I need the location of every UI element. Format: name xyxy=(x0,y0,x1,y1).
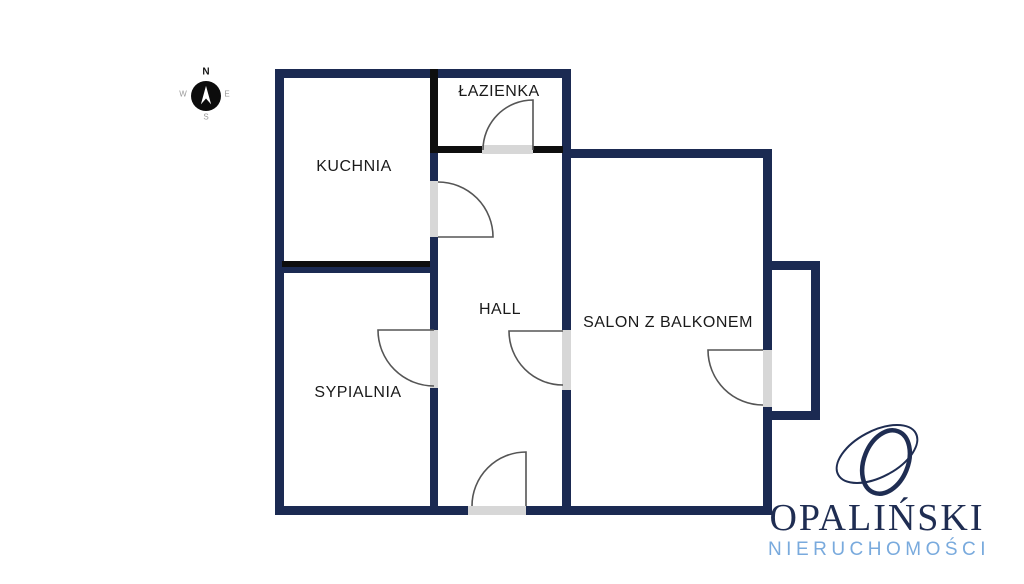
wall-salon-top xyxy=(562,149,772,158)
wall-kitchen-bottom-navy xyxy=(282,267,430,273)
wall-salon-east xyxy=(763,149,772,515)
wall-left xyxy=(275,69,284,515)
door-arc-kitchen xyxy=(438,182,493,237)
door-threshold-salon xyxy=(562,330,571,390)
floor-plan-page: N E S W xyxy=(0,0,1024,584)
room-label-lazienka: ŁAZIENKA xyxy=(458,83,539,101)
door-threshold-bathroom xyxy=(482,145,533,154)
wall-balcony-bottom xyxy=(772,411,820,420)
room-label-hall: HALL xyxy=(479,301,521,319)
door-arc-balcony xyxy=(708,350,763,405)
room-label-kuchnia: KUCHNIA xyxy=(316,158,392,176)
wall-top xyxy=(275,69,568,78)
door-threshold-bedroom xyxy=(430,330,438,388)
door-threshold-balcony xyxy=(763,350,772,407)
room-label-salon: SALON Z BALKONEM xyxy=(583,314,753,332)
wall-kitchen-bottom-black xyxy=(282,261,430,267)
door-threshold-entry xyxy=(468,506,526,515)
door-arc-salon xyxy=(509,331,563,385)
wall-bathroom-left xyxy=(430,69,438,153)
door-arc-entry xyxy=(472,452,526,506)
wall-hall-east xyxy=(562,69,571,515)
wall-balcony-right xyxy=(811,261,820,420)
walls-navy xyxy=(275,69,820,515)
door-arc-bedroom xyxy=(378,330,434,386)
door-threshold-kitchen xyxy=(430,181,438,237)
room-label-sypialnia: SYPIALNIA xyxy=(314,384,401,402)
door-arc-bathroom xyxy=(483,100,533,150)
